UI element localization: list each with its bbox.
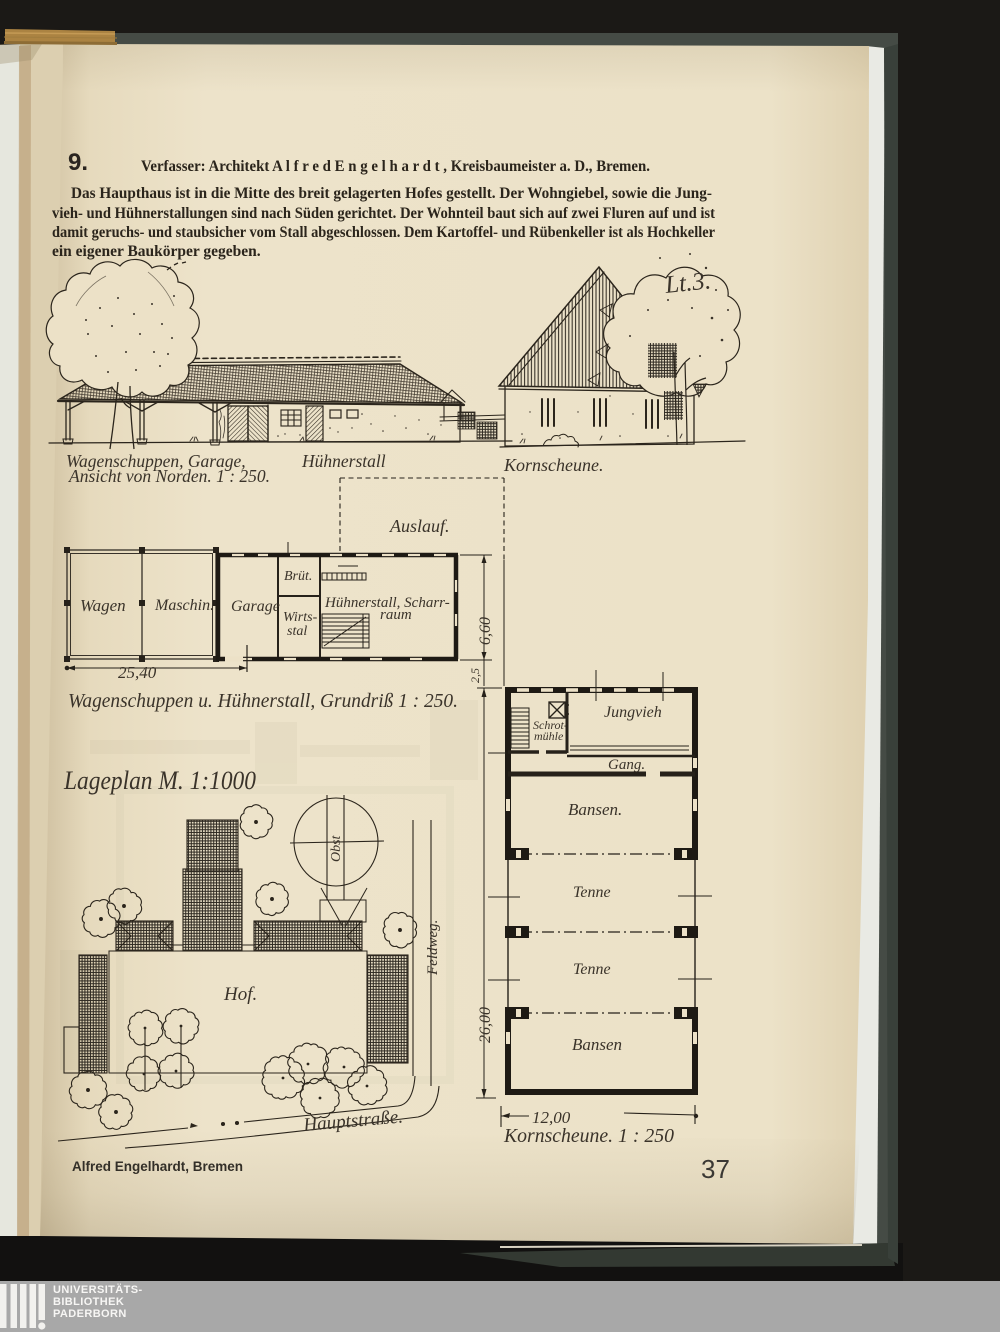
- svg-text:Maschin.: Maschin.: [154, 597, 214, 614]
- svg-text:ein eigener Baukörper gegeben.: ein eigener Baukörper gegeben.: [52, 243, 261, 260]
- svg-text:Jungvieh: Jungvieh: [604, 704, 662, 721]
- svg-text:stal: stal: [287, 624, 307, 639]
- svg-text:6,60: 6,60: [477, 617, 494, 645]
- svg-text:vieh- und Hühnerstallungen sin: vieh- und Hühnerstallungen sind nach Süd…: [52, 205, 716, 222]
- svg-text:Bansen.: Bansen.: [568, 800, 622, 819]
- svg-text:26,00: 26,00: [477, 1007, 494, 1043]
- svg-text:Tenne: Tenne: [573, 961, 611, 978]
- svg-text:Hauptstraße.: Hauptstraße.: [302, 1106, 404, 1136]
- svg-text:Ansicht von Norden. 1 : 250.: Ansicht von Norden. 1 : 250.: [68, 466, 270, 486]
- svg-text:Bansen: Bansen: [572, 1035, 622, 1054]
- svg-text:mühle: mühle: [534, 729, 564, 743]
- svg-text:Kornscheune. 1 : 250: Kornscheune. 1 : 250: [503, 1125, 674, 1147]
- svg-text:damit geruchs- und staubsicher: damit geruchs- und staubsicher vom Stall…: [52, 224, 715, 241]
- svg-text:Obst: Obst: [329, 834, 344, 862]
- svg-text:Verfasser: Architekt A l f r e: Verfasser: Architekt A l f r e d E n g e…: [141, 158, 650, 175]
- svg-text:2,5: 2,5: [468, 668, 482, 683]
- svg-text:Garage: Garage: [231, 598, 280, 615]
- svg-text:Wirts-: Wirts-: [283, 610, 318, 625]
- svg-text:9.: 9.: [68, 149, 88, 176]
- svg-text:Hühnerstall: Hühnerstall: [301, 451, 386, 471]
- svg-text:Auslauf.: Auslauf.: [389, 516, 450, 536]
- svg-text:Feldweg.: Feldweg.: [425, 920, 441, 976]
- svg-text:Lt.3.: Lt.3.: [663, 267, 712, 299]
- svg-text:Alfred Engelhardt, Bremen: Alfred Engelhardt, Bremen: [72, 1159, 243, 1174]
- svg-text:Wagenschuppen u. Hühnerstall,: Wagenschuppen u. Hühnerstall, Grundriß 1…: [68, 691, 458, 712]
- svg-text:Gang.: Gang.: [608, 757, 645, 773]
- svg-text:Kornscheune.: Kornscheune.: [503, 455, 603, 475]
- svg-text:37: 37: [701, 1154, 730, 1184]
- svg-text:raum: raum: [380, 607, 412, 623]
- svg-text:Brüt.: Brüt.: [284, 569, 312, 584]
- svg-text:Lageplan M. 1:1000: Lageplan M. 1:1000: [63, 766, 256, 795]
- svg-text:Hof.: Hof.: [223, 984, 257, 1005]
- svg-text:Das Haupthaus ist in die Mitte: Das Haupthaus ist in die Mitte des breit…: [71, 185, 712, 202]
- svg-text:Tenne: Tenne: [573, 884, 611, 901]
- svg-text:Wagen: Wagen: [80, 596, 126, 615]
- svg-text:25,40: 25,40: [118, 663, 157, 682]
